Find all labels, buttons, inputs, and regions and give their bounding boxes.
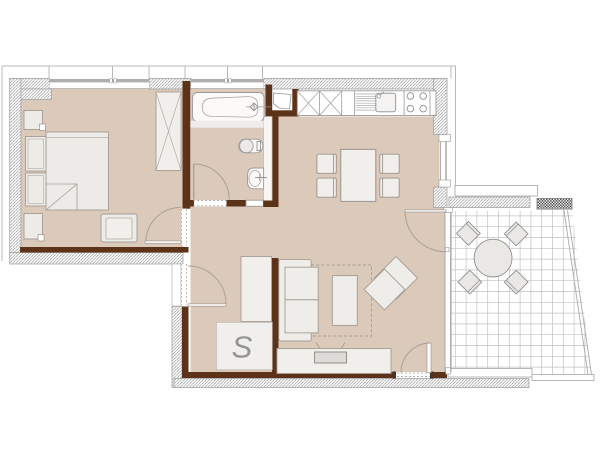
svg-text:S: S — [232, 330, 253, 365]
